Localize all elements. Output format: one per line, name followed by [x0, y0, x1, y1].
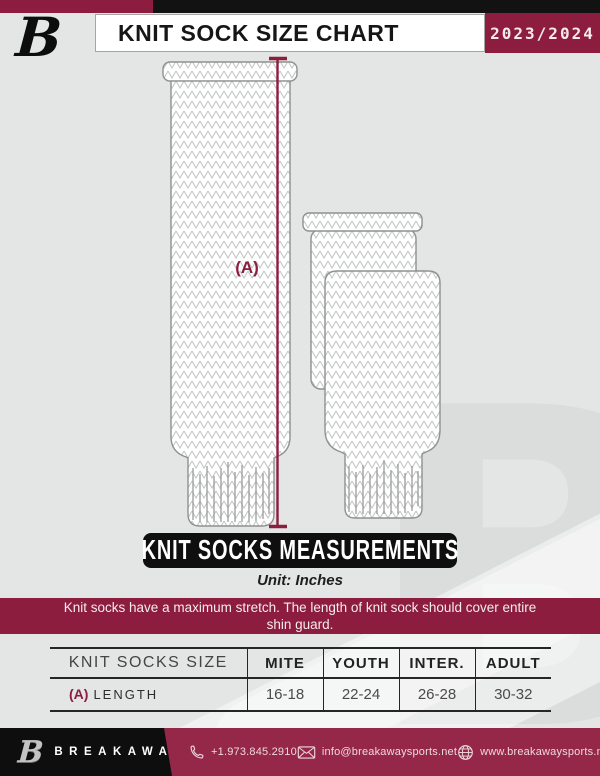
- length-value-adult: 30-32: [475, 678, 551, 711]
- footer-bar: B BREAKAWAY +1.973.845.2910 info@breakaw…: [0, 728, 600, 776]
- page-title: KNIT SOCK SIZE CHART: [118, 20, 399, 47]
- phone-number: +1.973.845.2910: [211, 746, 297, 758]
- column-header-mite: MITE: [247, 648, 323, 678]
- column-header-youth: YOUTH: [323, 648, 399, 678]
- column-header-size: KNIT SOCKS SIZE: [50, 648, 247, 678]
- stretch-note-text: Knit socks have a maximum stretch. The l…: [50, 599, 550, 633]
- season-badge: 2023/2024: [485, 13, 600, 53]
- length-value-youth: 22-24: [323, 678, 399, 711]
- website-url: www.breakawaysports.net: [480, 746, 600, 758]
- column-header-inter: INTER.: [399, 648, 475, 678]
- unit-note: Unit: Inches: [0, 572, 600, 589]
- size-table-header-row: KNIT SOCKS SIZE MITE YOUTH INTER. ADULT: [50, 648, 551, 678]
- contact-website: www.breakawaysports.net: [457, 744, 600, 761]
- phone-icon: [188, 744, 205, 761]
- size-table: KNIT SOCKS SIZE MITE YOUTH INTER. ADULT …: [50, 647, 551, 712]
- size-table-length-row: (A)LENGTH 16-18 22-24 26-28 30-32: [50, 678, 551, 711]
- brand-b-logo: B: [14, 8, 64, 67]
- measurements-banner: KNIT SOCKS MEASUREMENTS: [143, 533, 457, 568]
- globe-icon: [457, 744, 474, 761]
- envelope-icon: [297, 745, 316, 760]
- measurement-label-a: (A): [235, 258, 259, 277]
- sock-youth-front: [325, 271, 440, 518]
- top-strip-black: [153, 0, 600, 13]
- footer-brand-name: BREAKAWAY: [54, 746, 186, 758]
- footer-brand-block: B BREAKAWAY: [0, 728, 172, 776]
- footer-b-logo: B: [17, 735, 45, 770]
- contact-phone: +1.973.845.2910: [188, 744, 297, 761]
- measurements-banner-title: KNIT SOCKS MEASUREMENTS: [141, 534, 458, 566]
- email-address: info@breakawaysports.net: [322, 746, 457, 758]
- column-header-adult: ADULT: [475, 648, 551, 678]
- footer-contacts: +1.973.845.2910 info@breakawaysports.net…: [188, 728, 594, 776]
- length-value-inter: 26-28: [399, 678, 475, 711]
- knit-sock-size-chart-page: B B KNIT SOCK SIZE CHART 2023/2024: [0, 0, 600, 776]
- stretch-note-banner: Knit socks have a maximum stretch. The l…: [0, 598, 600, 634]
- row-key-a: (A): [69, 686, 88, 702]
- contact-email: info@breakawaysports.net: [297, 745, 457, 760]
- row-label-length: (A)LENGTH: [50, 678, 247, 711]
- length-value-mite: 16-18: [247, 678, 323, 711]
- title-bar: KNIT SOCK SIZE CHART: [95, 14, 485, 52]
- row-name-length: LENGTH: [93, 687, 158, 702]
